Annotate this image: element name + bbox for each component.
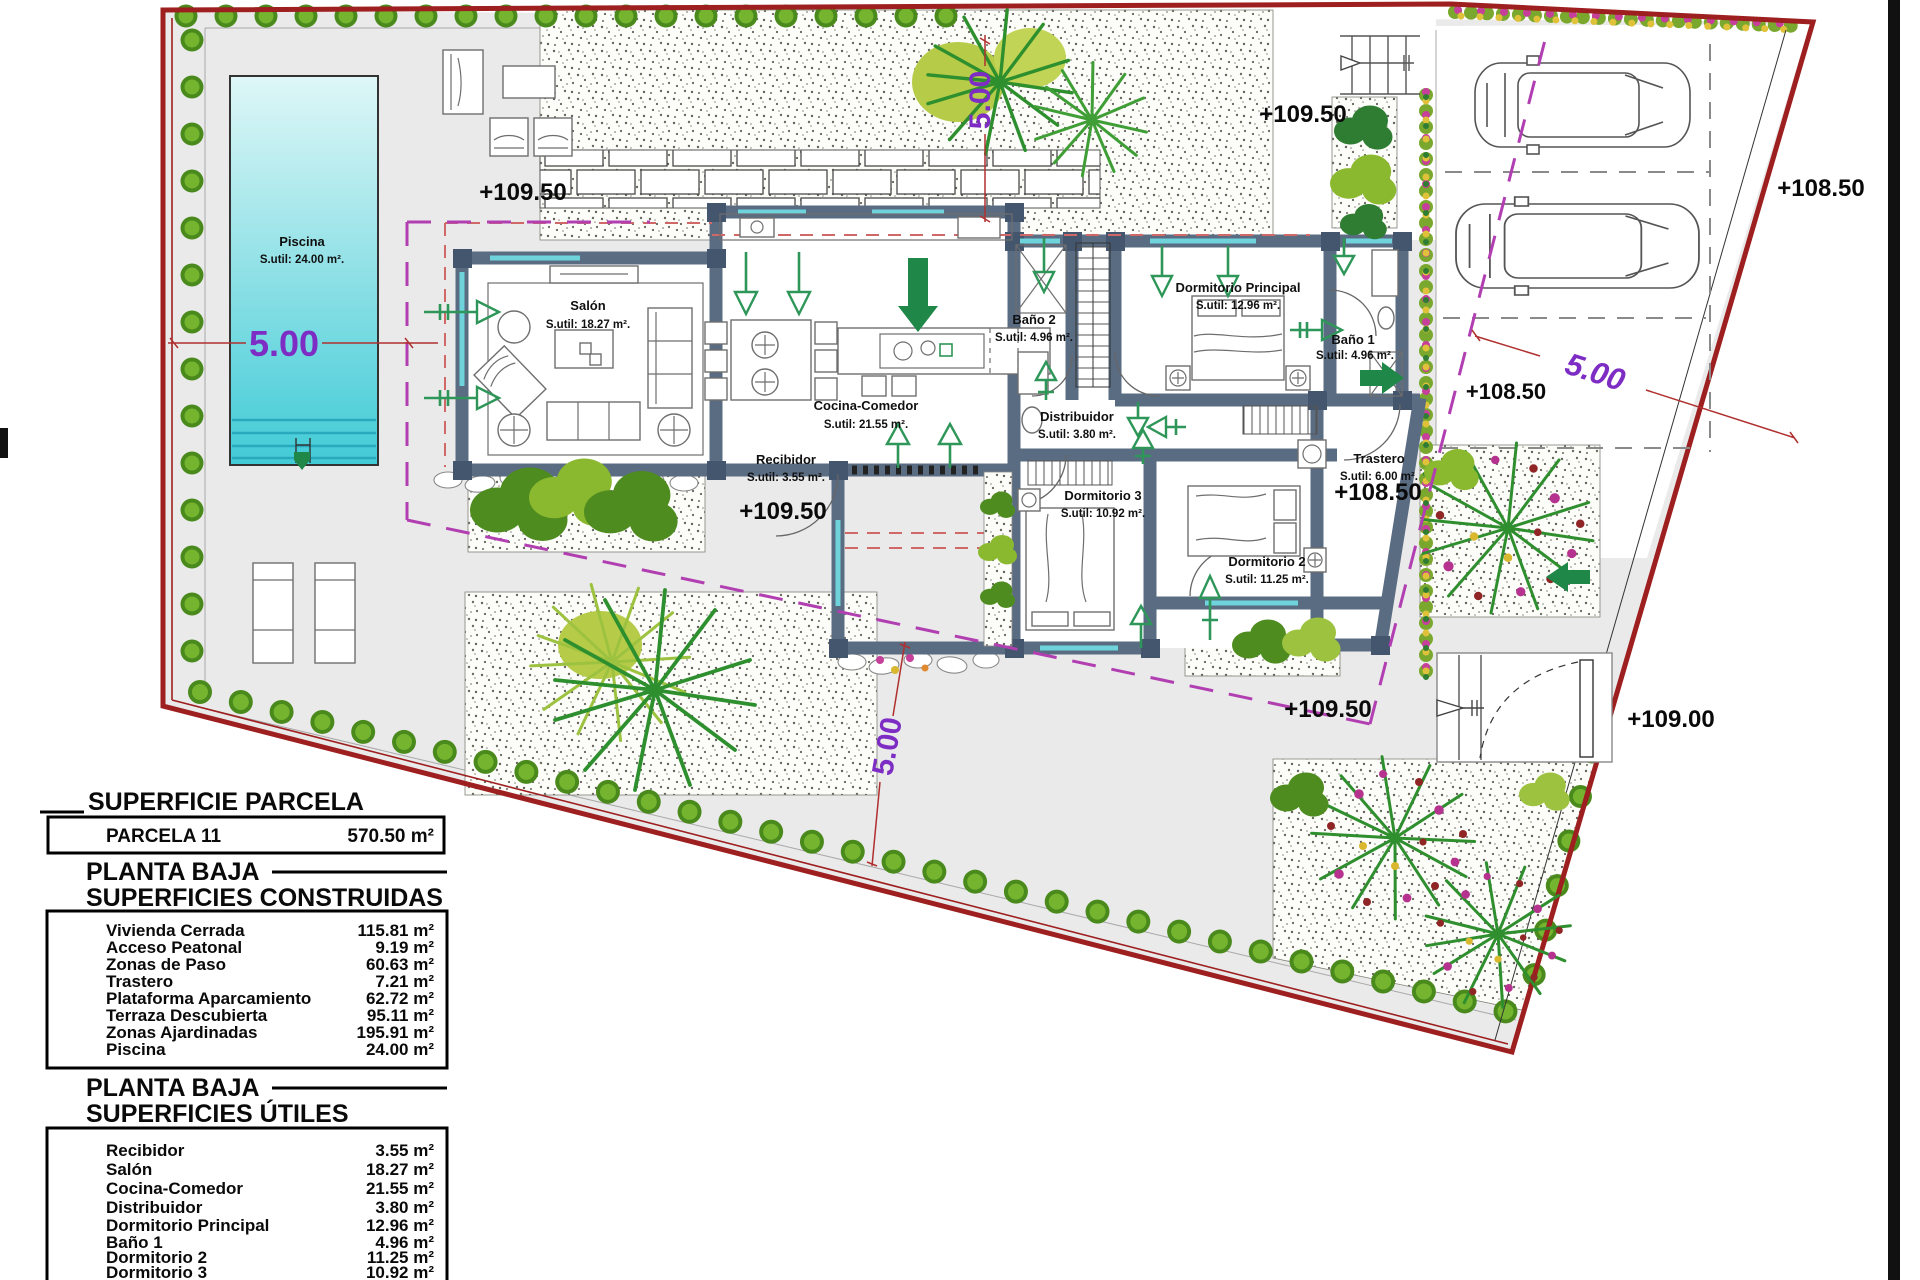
dining-set (705, 320, 837, 400)
sheet-frame-right (1888, 0, 1900, 1280)
room-label: Baño 1 (1331, 332, 1374, 347)
row-label: Dormitorio 3 (106, 1263, 207, 1280)
row-value: 10.92 m² (366, 1263, 434, 1280)
wardrobe (1028, 461, 1112, 485)
room-area: S.util: 4.96 m². (995, 332, 1073, 344)
room-label: Baño 2 (1012, 312, 1055, 327)
elevation-label: +109.50 (1259, 101, 1346, 128)
room-area: S.util: 11.25 m². (1225, 574, 1309, 586)
site-plan-screenshot: Salón S.util: 18.27 m². Cocina-Comedor S… (0, 0, 1920, 1280)
paving-slabs (540, 150, 1100, 208)
table-title2: SUPERFICIES ÚTILES (86, 1098, 349, 1128)
table-title: SUPERFICIE PARCELA (88, 788, 364, 816)
room-label: Salón (570, 298, 605, 313)
room-label: Dormitorio Principal (1176, 280, 1301, 295)
table-row-label: PARCELA 11 (106, 826, 222, 847)
row-label: Piscina (106, 1040, 166, 1059)
outdoor-chair (490, 118, 528, 156)
elevation-label: +108.50 (1466, 379, 1546, 404)
room-area: S.util: 3.80 m². (1038, 429, 1116, 441)
room-label: Recibidor (756, 452, 816, 467)
room-area: S.util: 21.55 m². (824, 419, 908, 431)
elevation-label: +109.50 (739, 498, 826, 525)
row-value: 21.55 m² (366, 1179, 434, 1198)
dim-label-top: 5.00 (964, 71, 997, 129)
outdoor-table (503, 66, 555, 98)
room-area: S.util: 10.92 m². (1061, 508, 1145, 520)
elevation-label: +109.00 (1627, 706, 1714, 733)
floor-plan-canvas: Salón S.util: 18.27 m². Cocina-Comedor S… (0, 0, 1920, 1280)
room-area: S.util: 24.00 m². (260, 254, 344, 266)
sheet-frame-tick (0, 428, 8, 458)
table-title1: PLANTA BAJA (86, 1074, 260, 1102)
sun-lounger (315, 563, 355, 663)
row-value: 3.55 m² (375, 1141, 434, 1160)
area-tables: SUPERFICIE PARCELA PARCELA 11 570.50 m² … (40, 788, 447, 1280)
table-superficies-construidas: PLANTA BAJA SUPERFICIES CONSTRUIDAS Vivi… (47, 858, 447, 1068)
room-area: S.util: 4.96 m². (1316, 350, 1394, 362)
table-title1: PLANTA BAJA (86, 858, 260, 886)
entrance-door-leaf (1580, 660, 1593, 757)
room-label: Trastero (1353, 451, 1404, 466)
table-superficies-utiles: PLANTA BAJA SUPERFICIES ÚTILES Recibidor… (47, 1074, 447, 1280)
room-label: Cocina-Comedor (814, 398, 919, 413)
table-superficie-parcela: SUPERFICIE PARCELA PARCELA 11 570.50 m² (40, 788, 444, 853)
outdoor-sofa (443, 50, 483, 114)
sun-lounger (253, 563, 293, 663)
car-top-view (1475, 56, 1690, 154)
wardrobe (1243, 406, 1317, 434)
row-label: Cocina-Comedor (106, 1179, 243, 1198)
elevation-label: +108.50 (1334, 479, 1421, 506)
swimming-pool (230, 76, 378, 465)
room-area: S.util: 12.96 m². (1196, 300, 1280, 312)
room-label: Dormitorio 2 (1228, 554, 1305, 569)
row-label: Salón (106, 1160, 152, 1179)
elevation-label: +108.50 (1777, 175, 1864, 202)
room-label: Distribuidor (1040, 409, 1114, 424)
row-value: 3.80 m² (375, 1198, 434, 1217)
elevation-label: +109.50 (479, 179, 566, 206)
row-label: Distribuidor (106, 1198, 203, 1217)
row-value: 18.27 m² (366, 1160, 434, 1179)
room-label: Dormitorio 3 (1064, 488, 1141, 503)
room-label: Piscina (279, 234, 325, 249)
dim-label-pool: 5.00 (249, 323, 319, 364)
outdoor-chair (534, 118, 572, 156)
row-value: 24.00 m² (366, 1040, 434, 1059)
table-title2: SUPERFICIES CONSTRUIDAS (86, 884, 443, 912)
elevation-label: +109.50 (1284, 696, 1371, 723)
table-row-value: 570.50 m² (347, 826, 434, 847)
row-label: Recibidor (106, 1141, 185, 1160)
entrance-steps (1437, 653, 1612, 762)
room-area: S.util: 3.55 m². (747, 472, 825, 484)
room-area: S.util: 18.27 m². (546, 319, 630, 331)
